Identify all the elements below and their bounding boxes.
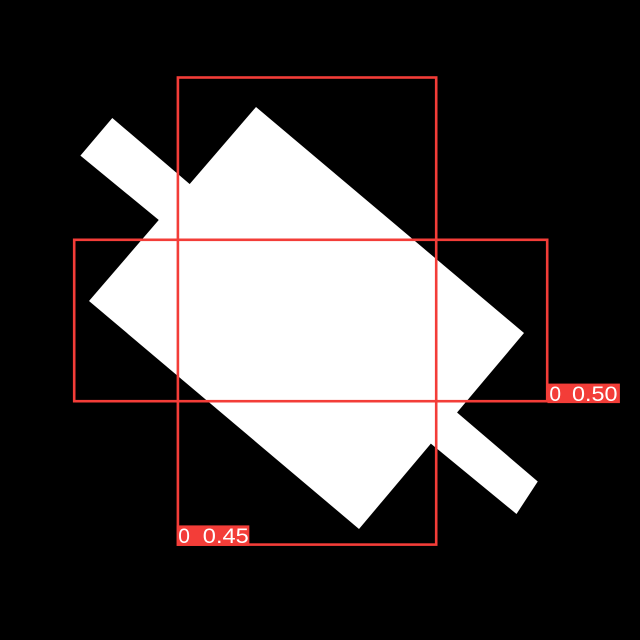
svg-text:00.50: 00.50 [549, 383, 617, 406]
svg-text:00.45: 00.45 [178, 525, 249, 548]
